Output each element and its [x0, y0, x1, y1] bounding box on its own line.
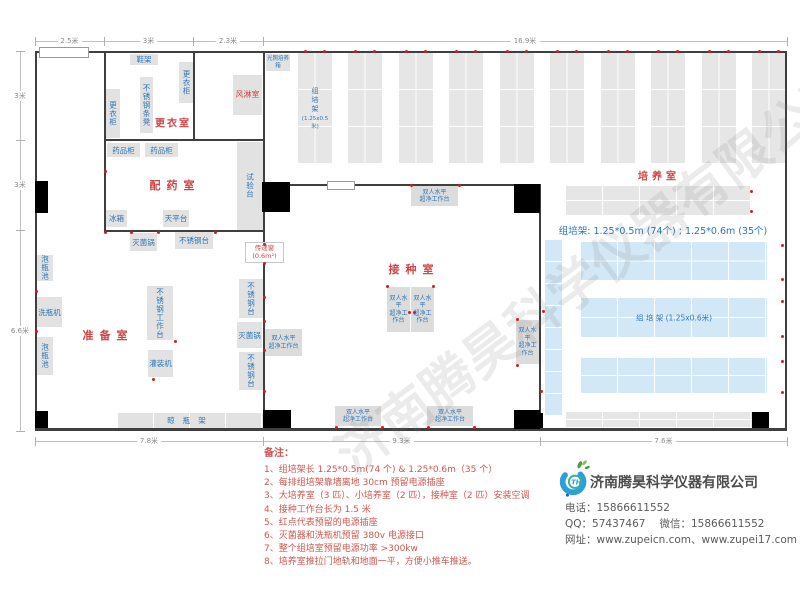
power-outlet-dot [777, 50, 780, 53]
company-logo-icon: TH [556, 458, 594, 498]
power-outlet-dot [556, 50, 559, 53]
power-outlet-dot [35, 290, 38, 293]
wall [35, 51, 787, 53]
door-opening [35, 411, 48, 428]
clean-bench-label: 双人水平 [411, 295, 434, 310]
power-outlet-dot [405, 50, 408, 53]
qq-label: QQ： [565, 518, 592, 530]
power-outlet-dot [263, 320, 266, 323]
equipment-shoe-rack: 鞋架 [130, 54, 158, 65]
door-opening [262, 182, 290, 212]
power-outlet-dot [474, 50, 477, 53]
clean-bench-label: 双人水平 [271, 335, 295, 343]
power-outlet-dot [676, 50, 679, 53]
equipment-fridge: 冰箱 [106, 210, 127, 227]
power-outlet-dot [575, 50, 578, 53]
dimension-label: 2.5米 [57, 36, 81, 46]
power-outlet-dot [104, 170, 107, 173]
room-label-dispensing-room: 配药室 [150, 177, 201, 193]
power-outlet-dot [263, 243, 266, 246]
company-name: 济南腾昊科学仪器有限公司 [590, 472, 758, 492]
power-outlet-dot [432, 285, 435, 288]
power-outlet-dot [626, 50, 629, 53]
svg-text:TH: TH [571, 479, 582, 487]
door-opening [263, 410, 291, 428]
equipment-ss-table: 不锈钢台 [175, 232, 213, 249]
wall [539, 184, 541, 431]
wall [104, 51, 106, 232]
room-label-culture-room: 培养室 [638, 168, 680, 183]
clean-bench: 双人水平超净工作台 [335, 406, 381, 426]
power-outlet-dot [263, 262, 266, 265]
power-outlet-dot [408, 311, 411, 314]
clean-bench-label: 双人水平 [387, 295, 410, 310]
culture-rack-horizontal [566, 186, 750, 215]
equipment-locker: 更衣柜 [106, 89, 120, 138]
power-outlet-dot [516, 318, 519, 321]
power-outlet-dot [708, 50, 711, 53]
equipment-filling-machine: 灌装机 [148, 350, 173, 377]
power-outlet-dot [323, 50, 326, 53]
clean-bench-label: 超净工作台 [387, 310, 410, 325]
dimension-tick [16, 140, 25, 141]
culture-rack-vertical [348, 53, 382, 163]
power-outlet-dot [354, 50, 357, 53]
culture-rack-vertical [500, 53, 534, 163]
door-opening [529, 413, 543, 428]
note-item: 3、大培养室（3 匹）、小培养室（2 匹），接种室（2 匹）安装空调 [264, 490, 559, 503]
power-outlet-dot [781, 300, 784, 303]
culture-rack-vertical [601, 53, 635, 163]
power-outlet-dot [727, 50, 730, 53]
door-leaf [39, 47, 89, 58]
power-outlet-dot [373, 50, 376, 53]
equipment-bottle-washer: 洗瓶机 [37, 297, 62, 327]
phone-value: 15866611552 [597, 502, 671, 514]
power-outlet-dot [525, 50, 528, 53]
power-outlet-dot [104, 231, 107, 234]
power-outlet-dot [214, 231, 217, 234]
culture-rack-blue-vertical [545, 240, 562, 416]
equipment-test-bench: 试验台 [237, 142, 263, 230]
power-outlet-dot [263, 390, 266, 393]
note-item: 4、接种工作台长为 1.5 米 [264, 504, 559, 517]
power-outlet-dot [750, 210, 753, 213]
dimension-label: 2.3米 [216, 36, 240, 46]
notes-list: 1、组培架长 1.25*0.5m(74 个) & 1.25*0.6m（35 个）… [264, 464, 559, 570]
note-item: 1、组培架长 1.25*0.5m(74 个) & 1.25*0.6m（35 个） [264, 464, 559, 477]
culture-rack-vertical [449, 53, 483, 163]
culture-rack-blue [581, 358, 767, 393]
power-outlet-dot [657, 50, 660, 53]
power-outlet-dot [386, 285, 389, 288]
clean-bench: 双人水平超净工作台 [411, 287, 434, 332]
dimension-tick [263, 37, 264, 46]
equipment-air-shower: 风淋室 [233, 75, 262, 115]
wechat-value: 15866611552 [691, 518, 765, 530]
culture-rack-label: 组培架(1.25x0.5米) [298, 60, 332, 156]
rack-medium-label: 组 培 架 (1.25x0.6米) [636, 313, 712, 324]
door-opening [35, 181, 48, 213]
power-outlet-dot [542, 310, 545, 313]
power-outlet-dot [516, 364, 519, 367]
clean-bench-label: 超净工作台 [435, 416, 465, 424]
company-phone: 电话：15866611552 [565, 500, 670, 515]
power-outlet-dot [427, 426, 430, 429]
notes-section: 备注： 1、组培架长 1.25*0.5m(74 个) & 1.25*0.6m（3… [264, 444, 559, 570]
dimension-label: 6.6米 [8, 326, 32, 336]
clean-bench-label: 双人水平 [438, 409, 462, 417]
qq-value: 57437467 [592, 518, 645, 530]
note-item: 7、整个组培室预留电源功率 >300kw [264, 543, 559, 556]
power-outlet-dot [781, 391, 784, 394]
culture-rack-horizontal [566, 412, 753, 427]
clean-bench: 双人水平超净工作台 [265, 329, 302, 356]
floor-plan-canvas: 济南腾昊科学仪器有限公司 组培架(1.25x0.5米)组培架: 1.25*0.5… [0, 0, 800, 600]
dimension-label: 3米 [140, 36, 157, 46]
room-label-prep-room: 准备室 [83, 327, 134, 343]
room-label-changing-room: 更衣室 [155, 115, 191, 130]
note-item: 2、每排组培架靠墙离地 30cm 预留电源插座 [264, 477, 559, 490]
culture-rack-vertical [702, 53, 736, 163]
power-outlet-dot [458, 184, 461, 187]
power-outlet-dot [781, 335, 784, 338]
power-outlet-dot [424, 50, 427, 53]
rack-spec-text: 组培架: 1.25*0.5m (74个) ; 1.25*0.6m (35个) [559, 223, 768, 237]
dimension-label: 16.9米 [511, 36, 540, 46]
equipment-medicine-cabinet: 药品柜 [145, 143, 178, 157]
wall [104, 139, 265, 141]
wechat-label: 微信： [659, 518, 691, 530]
power-outlet-dot [152, 378, 155, 381]
power-outlet-dot [506, 50, 509, 53]
clean-bench: 双人水平超净工作台 [387, 287, 410, 332]
door-leaf [327, 181, 355, 190]
wall [35, 51, 37, 431]
power-outlet-dot [335, 426, 338, 429]
dimension-label: 3米 [11, 180, 28, 190]
dimension-label: 3米 [11, 91, 28, 101]
transfer-window-label: (0.6m²) [252, 253, 276, 261]
power-outlet-dot [781, 360, 784, 363]
clean-bench-label: 超净工作台 [516, 342, 539, 357]
dimension-tick [16, 51, 25, 52]
clean-bench-label: 双人水平 [346, 409, 370, 417]
dimension-label: 7.8米 [137, 436, 161, 446]
dimension-tick [16, 431, 25, 432]
clean-bench: 双人水平超净工作台 [516, 320, 539, 364]
dimension-tick [193, 37, 194, 46]
culture-rack-blue [581, 242, 767, 280]
culture-rack-vertical [651, 53, 685, 163]
phone-label: 电话： [565, 502, 597, 514]
dimension-tick [35, 437, 36, 446]
equipment-soak-pool: 泡瓶池 [37, 255, 53, 281]
power-outlet-dot [455, 50, 458, 53]
door-opening [752, 412, 769, 428]
equipment-ss-table: 不锈钢台 [239, 352, 263, 390]
door-opening [514, 184, 540, 213]
company-website: 网址：www.zupeicn.com、www.zupei17.com [565, 532, 797, 547]
power-outlet-dot [174, 340, 177, 343]
dimension-tick [787, 437, 788, 446]
power-outlet-dot [781, 278, 784, 281]
dimension-tick [35, 37, 36, 46]
wall [263, 51, 265, 431]
culture-rack-vertical [752, 53, 786, 163]
power-outlet-dot [607, 50, 610, 53]
dimension-tick [16, 230, 25, 231]
wall [263, 184, 541, 186]
note-item: 8、培养室推拉门地轨和地面一平，方便小推车推送。 [264, 556, 559, 569]
rack-label-text: 组培架 [310, 87, 320, 114]
company-qq-wechat: QQ：57437467微信：15866611552 [565, 516, 764, 531]
equipment-medicine-cabinet: 药品柜 [107, 143, 140, 157]
clean-bench-label: 超净工作台 [268, 343, 298, 351]
power-outlet-dot [263, 349, 266, 352]
power-outlet-dot [263, 296, 266, 299]
notes-title: 备注： [264, 444, 559, 459]
power-outlet-dot [781, 244, 784, 247]
power-outlet-dot [540, 390, 543, 393]
culture-rack-vertical [550, 53, 584, 163]
equipment-sterilizer: 灭菌锅 [237, 322, 262, 348]
wall [104, 230, 265, 232]
wall [193, 51, 195, 141]
power-outlet-dot [381, 426, 384, 429]
equipment-balance-table: 天平台 [163, 210, 189, 227]
dimension-tick [104, 37, 105, 46]
dimension-tick [787, 37, 788, 46]
equipment-ss-bench: 不锈钢条凳 [140, 77, 153, 133]
note-item: 5、红点代表预留的电源插座 [264, 517, 559, 530]
clean-bench-label: 超净工作台 [419, 196, 449, 204]
web-label: 网址： [565, 534, 597, 546]
clean-bench: 双人水平超净工作台 [427, 406, 473, 426]
equipment-ss-table: 不锈钢台 [239, 279, 263, 318]
dimension-label: 7.6米 [651, 436, 675, 446]
power-outlet-dot [157, 231, 160, 234]
equipment-soak-pool: 泡瓶池 [37, 337, 53, 375]
rack-size-text: (1.25x0.5米) [298, 116, 332, 130]
power-outlet-dot [413, 311, 416, 314]
power-outlet-dot [35, 330, 38, 333]
clean-bench: 双人水平超净工作台 [411, 186, 458, 206]
note-item: 6、灭菌器和洗瓶机预留 380v 电源接口 [264, 530, 559, 543]
clean-bench-label: 双人水平 [422, 189, 446, 197]
wall [785, 51, 787, 431]
equipment-drying-rack: 晾瓶架 [118, 413, 263, 428]
wall [35, 428, 787, 431]
equipment-sterilizer: 灭菌锅 [130, 233, 157, 251]
power-outlet-dot [130, 231, 133, 234]
equipment-light-incubator: 光照培养箱 [266, 54, 290, 71]
culture-rack-vertical [399, 53, 433, 163]
room-label-inoculation-room: 接种室 [389, 261, 440, 277]
power-outlet-dot [410, 184, 413, 187]
power-outlet-dot [473, 426, 476, 429]
clean-bench-label: 双人水平 [516, 327, 539, 342]
power-outlet-dot [304, 50, 307, 53]
power-outlet-dot [758, 50, 761, 53]
equipment-ss-worktable: 不锈钢工作台 [147, 286, 173, 340]
power-outlet-dot [750, 190, 753, 193]
equipment-locker: 更衣柜 [179, 62, 194, 103]
clean-bench-label: 超净工作台 [343, 416, 373, 424]
web-value: www.zupeicn.com、www.zupei17.com [597, 534, 798, 546]
